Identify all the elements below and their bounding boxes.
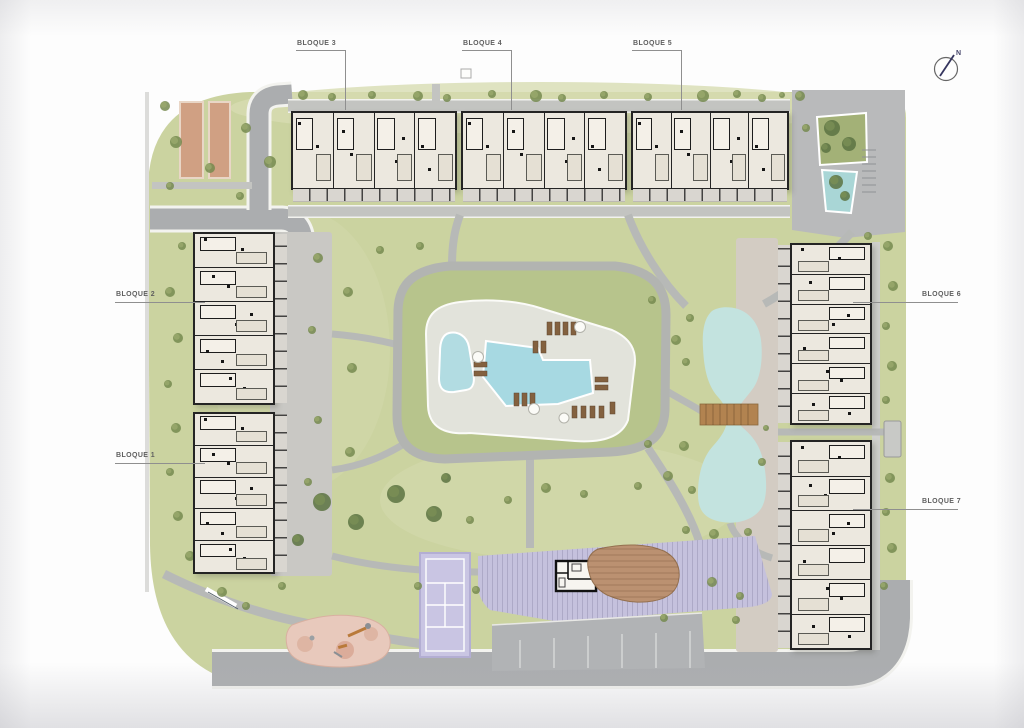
planted-square <box>817 113 867 165</box>
compass-icon: N <box>922 42 972 92</box>
building-bloque-6 <box>790 243 872 425</box>
leader-bloque-7 <box>853 509 958 510</box>
playground <box>286 615 390 667</box>
building-bloque-4 <box>461 111 627 190</box>
leader-bloque-4-v <box>511 50 512 110</box>
label-bloque-2: BLOQUE 2 <box>116 291 155 298</box>
leader-bloque-3-v <box>345 50 346 110</box>
building-bloque-2 <box>193 232 275 405</box>
leader-bloque-2 <box>115 302 205 303</box>
label-bloque-3: BLOQUE 3 <box>297 40 336 47</box>
building-bloque-5 <box>631 111 789 190</box>
leader-bloque-4-h <box>462 50 512 51</box>
label-bloque-7: BLOQUE 7 <box>922 498 961 505</box>
pergola-bench <box>884 421 901 457</box>
leader-bloque-3-h <box>296 50 346 51</box>
building-bloque-1 <box>193 412 275 574</box>
leader-bloque-6 <box>853 302 958 303</box>
label-bloque-6: BLOQUE 6 <box>922 291 961 298</box>
site-plan: BLOQUE 2 BLOQUE 1 BLOQUE 3 BLOQUE 4 BLOQ… <box>0 0 1024 728</box>
label-bloque-4: BLOQUE 4 <box>463 40 502 47</box>
tennis-court <box>420 553 470 657</box>
leader-bloque-5-h <box>632 50 682 51</box>
leader-bloque-5-v <box>681 50 682 110</box>
label-bloque-1: BLOQUE 1 <box>116 452 155 459</box>
building-bloque-7 <box>790 440 872 650</box>
building-bloque-3 <box>291 111 457 190</box>
compass-north-label: N <box>956 50 961 57</box>
leader-bloque-1 <box>115 463 205 464</box>
label-bloque-5: BLOQUE 5 <box>633 40 672 47</box>
pond-bridge <box>700 404 758 425</box>
